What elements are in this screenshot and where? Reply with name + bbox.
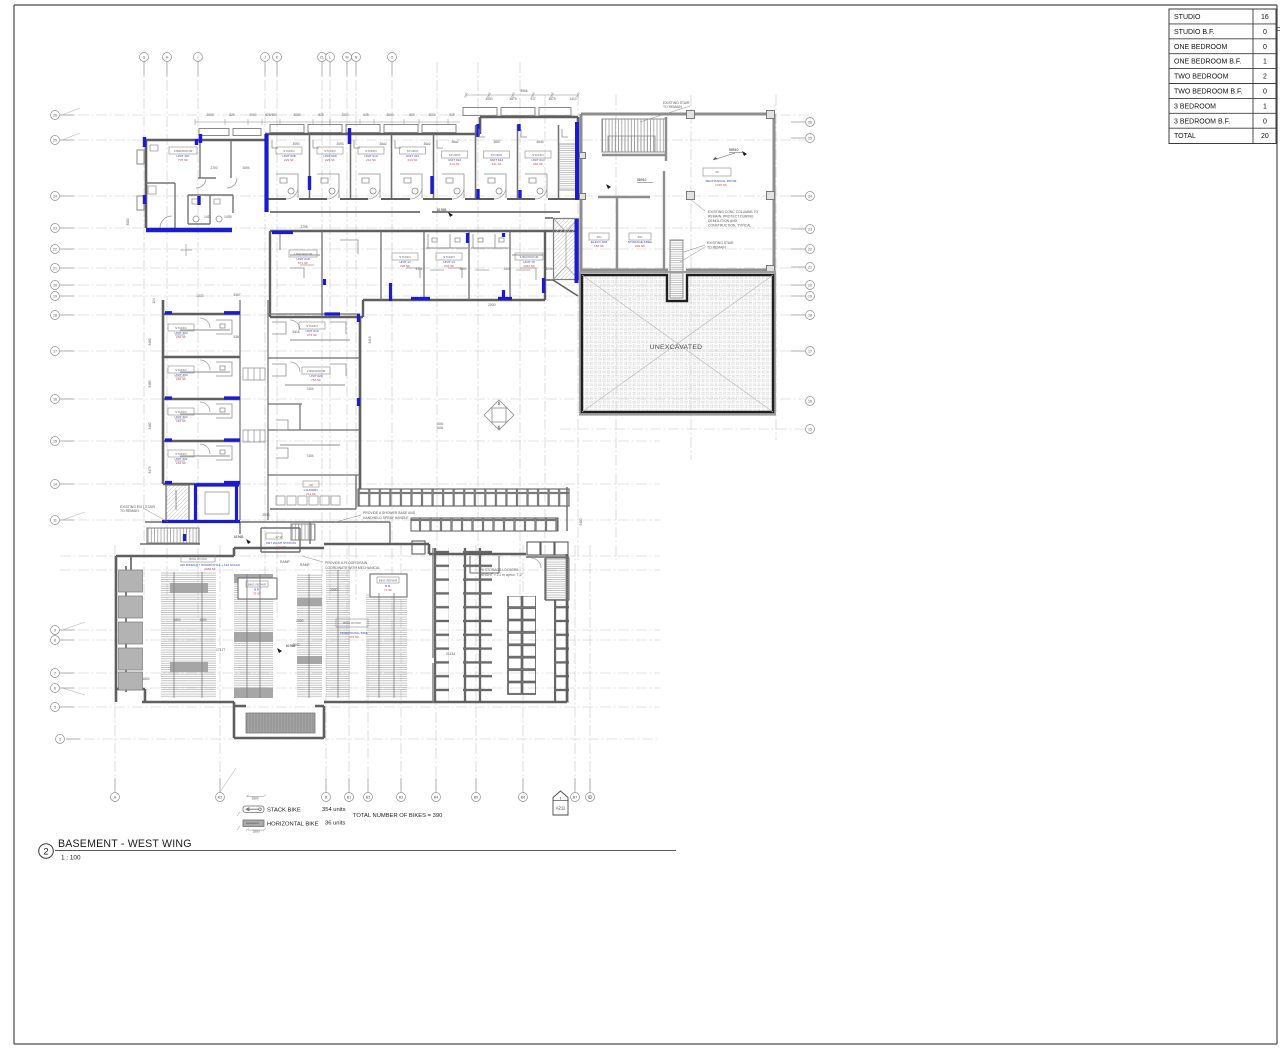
svg-text:23: 23 <box>808 227 812 231</box>
svg-text:B5: B5 <box>474 795 478 799</box>
svg-text:47 W: 47 W <box>275 535 282 539</box>
svg-text:1411: 1411 <box>204 215 211 219</box>
svg-text:4X6: 4X6 <box>437 426 443 430</box>
svg-text:240 SF: 240 SF <box>533 162 543 166</box>
svg-text:STUDIO: STUDIO <box>306 324 318 328</box>
svg-text:3480: 3480 <box>148 380 152 387</box>
svg-text:61965: 61965 <box>286 644 296 648</box>
svg-text:I: I <box>198 55 199 59</box>
svg-text:EXISTING CONC COLUMNS TO: EXISTING CONC COLUMNS TO <box>708 210 759 214</box>
svg-text:15: 15 <box>808 427 812 431</box>
svg-text:STUDIO: STUDIO <box>491 153 503 157</box>
svg-text:TO REMAIN: TO REMAIN <box>663 105 682 109</box>
svg-text:STUDIO: STUDIO <box>175 326 187 330</box>
svg-text:53b7: 53b7 <box>233 335 240 339</box>
svg-text:3405: 3405 <box>503 267 510 271</box>
svg-text:3000: 3000 <box>341 113 348 117</box>
svg-text:754 SF: 754 SF <box>311 378 321 382</box>
svg-text:1443 SF: 1443 SF <box>523 264 535 268</box>
svg-text:14: 14 <box>53 482 57 486</box>
svg-text:778 SF: 778 SF <box>178 158 188 162</box>
svg-text:1: 1 <box>1263 103 1267 110</box>
svg-text:2533: 2533 <box>196 294 203 298</box>
svg-text:B3: B3 <box>399 795 403 799</box>
svg-text:BASEMENT - WEST WING: BASEMENT - WEST WING <box>58 838 192 850</box>
svg-text:H: H <box>166 55 169 59</box>
svg-text:STUDIO: STUDIO <box>175 452 187 456</box>
svg-text:76 STORAGE LOCKERS: 76 STORAGE LOCKERS <box>480 568 519 572</box>
svg-text:CL: CL <box>320 55 325 59</box>
svg-text:B4: B4 <box>434 795 438 799</box>
svg-text:17177: 17177 <box>216 648 226 652</box>
svg-text:825: 825 <box>363 113 369 117</box>
svg-text:19: 19 <box>808 294 812 298</box>
svg-text:825: 825 <box>229 113 235 117</box>
svg-text:124: 124 <box>152 298 156 304</box>
svg-text:246 SF: 246 SF <box>176 377 186 381</box>
svg-text:BIKE REPAIR: BIKE REPAIR <box>379 579 398 583</box>
svg-text:COORDINATE WITH MECHANICAL: COORDINATE WITH MECHANICAL <box>325 566 380 570</box>
svg-text:STUDIO: STUDIO <box>399 255 411 259</box>
svg-text:3 BEDROOM: 3 BEDROOM <box>1174 103 1216 110</box>
svg-text:HORIZONTAL BIKE: HORIZONTAL BIKE <box>267 822 319 828</box>
svg-text:ONE BEDROOM: ONE BEDROOM <box>1174 44 1227 51</box>
svg-text:274 SF: 274 SF <box>307 333 317 337</box>
svg-text:5418: 5418 <box>292 330 299 334</box>
svg-text:3134: 3134 <box>415 267 422 271</box>
svg-text:571 SF: 571 SF <box>298 261 308 265</box>
svg-text:STUDIO: STUDIO <box>324 149 336 153</box>
svg-text:ONE BEDROOM B.F.: ONE BEDROOM B.F. <box>1174 59 1241 66</box>
svg-text:G: G <box>143 55 146 59</box>
svg-text:1439: 1439 <box>224 215 232 219</box>
svg-text:71 SF: 71 SF <box>384 588 392 592</box>
svg-text:A211: A211 <box>556 806 566 811</box>
svg-text:8: 8 <box>54 638 56 642</box>
svg-text:2000: 2000 <box>296 619 304 623</box>
svg-text:3000: 3000 <box>459 267 466 271</box>
svg-text:B7: B7 <box>573 795 577 799</box>
svg-text:TOTAL NUMBER OF BIKES = 390: TOTAL NUMBER OF BIKES = 390 <box>353 813 442 819</box>
svg-text:473 SF: 473 SF <box>349 635 359 639</box>
svg-text:2283 SF: 2283 SF <box>204 567 216 571</box>
svg-text:22: 22 <box>808 247 812 251</box>
svg-text:3093: 3093 <box>292 142 299 146</box>
svg-text:24: 24 <box>808 194 812 198</box>
svg-text:0: 0 <box>1263 118 1267 125</box>
svg-text:226 SF: 226 SF <box>400 264 410 268</box>
svg-text:PROVIDE A FLOOR DRAIN,: PROVIDE A FLOOR DRAIN, <box>325 561 368 565</box>
svg-text:UNEXCAVATED: UNEXCAVATED <box>650 344 703 351</box>
svg-text:3479: 3479 <box>148 466 152 473</box>
svg-text:L: L <box>329 55 331 59</box>
svg-text:TO REMAIN: TO REMAIN <box>120 509 139 513</box>
svg-text:20: 20 <box>1261 133 1269 140</box>
svg-text:1: 1 <box>498 402 500 406</box>
svg-text:214 SF: 214 SF <box>450 162 460 166</box>
svg-text:214 SF: 214 SF <box>366 158 376 162</box>
svg-text:3 BEDROOM: 3 BEDROOM <box>174 149 193 153</box>
svg-text:26: 26 <box>53 113 57 117</box>
svg-text:1800: 1800 <box>251 797 258 801</box>
svg-text:11: 11 <box>53 518 57 522</box>
svg-text:2: 2 <box>43 847 48 858</box>
svg-text:STUDIO: STUDIO <box>407 149 419 153</box>
svg-text:26: 26 <box>808 120 812 124</box>
svg-text:1: 1 <box>560 797 562 801</box>
svg-text:STUDIO: STUDIO <box>175 368 187 372</box>
svg-text:B6: B6 <box>521 795 525 799</box>
svg-text:4640: 4640 <box>536 140 543 144</box>
svg-text:20: 20 <box>808 283 812 287</box>
svg-text:2533: 2533 <box>262 513 269 517</box>
svg-text:229 SF: 229 SF <box>325 158 335 162</box>
svg-text:3679: 3679 <box>548 97 555 101</box>
svg-text:B2: B2 <box>366 795 370 799</box>
svg-text:7404: 7404 <box>306 454 313 458</box>
svg-text:17: 17 <box>53 349 57 353</box>
svg-text:61965: 61965 <box>234 535 244 539</box>
svg-text:STUDIO: STUDIO <box>175 410 187 414</box>
svg-text:2798: 2798 <box>300 225 307 229</box>
svg-text:REMAIN, PROTECT DURING: REMAIN, PROTECT DURING <box>708 215 754 219</box>
svg-text:5: 5 <box>54 705 56 709</box>
svg-text:354 units: 354 units <box>322 807 346 813</box>
svg-text:2 BEDROOM: 2 BEDROOM <box>307 369 326 373</box>
svg-text:7: 7 <box>54 671 56 675</box>
svg-text:19: 19 <box>53 294 57 298</box>
svg-text:1800: 1800 <box>173 618 180 622</box>
svg-text:23: 23 <box>53 226 57 230</box>
svg-text:18: 18 <box>808 313 812 317</box>
svg-text:2000: 2000 <box>249 113 256 117</box>
svg-text:1800: 1800 <box>199 618 206 622</box>
svg-text:53b7: 53b7 <box>233 293 240 297</box>
svg-text:246 SF: 246 SF <box>176 419 186 423</box>
svg-text:1: 1 <box>1263 59 1267 66</box>
svg-text:229 SF: 229 SF <box>284 158 294 162</box>
svg-text:825/980: 825/980 <box>265 113 277 117</box>
svg-text:246 SF: 246 SF <box>176 461 186 465</box>
svg-text:3480: 3480 <box>148 422 152 429</box>
svg-text:3093: 3093 <box>336 142 343 146</box>
svg-text:1 BEDROOM: 1 BEDROOM <box>294 252 313 256</box>
svg-text:16: 16 <box>1261 14 1269 21</box>
svg-text:3657: 3657 <box>493 140 500 144</box>
svg-text:O: O <box>391 55 394 59</box>
svg-text:3: 3 <box>59 737 61 741</box>
svg-text:211 SF: 211 SF <box>306 492 316 496</box>
svg-text:17: 17 <box>808 349 812 353</box>
svg-text:STACK BIKE: STACK BIKE <box>267 808 301 814</box>
svg-text:7404: 7404 <box>306 387 313 391</box>
svg-text:58910: 58910 <box>637 178 647 182</box>
svg-text:3000: 3000 <box>126 218 130 225</box>
svg-text:9: 9 <box>54 628 56 632</box>
svg-text:RAMP: RAMP <box>280 560 291 564</box>
svg-text:BIKE ROOM: BIKE ROOM <box>343 621 361 625</box>
svg-text:HANDHELD SPRAY HANDLE: HANDHELD SPRAY HANDLE <box>363 516 409 520</box>
svg-text:48: 48 <box>309 483 313 487</box>
svg-text:304b: 304b <box>545 267 552 271</box>
svg-text:N: N <box>355 55 358 59</box>
svg-text:246 SF: 246 SF <box>176 335 186 339</box>
svg-text:825: 825 <box>318 113 324 117</box>
svg-text:0: 0 <box>1263 89 1267 96</box>
svg-text:RAMP: RAMP <box>300 563 311 567</box>
svg-text:231 SF: 231 SF <box>492 162 502 166</box>
svg-text:21134: 21134 <box>446 652 455 656</box>
svg-text:A2: A2 <box>218 795 222 799</box>
svg-text:3 BEDROOM B.F.: 3 BEDROOM B.F. <box>1174 118 1230 125</box>
svg-text:C: C <box>589 795 592 799</box>
svg-text:25: 25 <box>53 138 57 142</box>
svg-text:STUDIO: STUDIO <box>443 255 455 259</box>
svg-text:BIKE ROOM: BIKE ROOM <box>189 557 207 561</box>
svg-text:3480: 3480 <box>148 338 152 345</box>
svg-text:STUDIO: STUDIO <box>532 153 544 157</box>
svg-text:J: J <box>264 55 266 59</box>
svg-text:2000: 2000 <box>330 588 338 592</box>
svg-text:89b6: 89b6 <box>520 89 527 93</box>
svg-text:DEMOLITION AND: DEMOLITION AND <box>708 219 738 223</box>
svg-text:58910: 58910 <box>729 148 739 152</box>
svg-text:3679: 3679 <box>509 97 516 101</box>
svg-text:1410: 1410 <box>569 97 576 101</box>
svg-text:16: 16 <box>53 397 57 401</box>
svg-text:3040: 3040 <box>485 97 492 101</box>
svg-text:EXISTING STAIR: EXISTING STAIR <box>707 241 734 245</box>
svg-text:18: 18 <box>53 313 57 317</box>
svg-text:61965: 61965 <box>437 208 447 212</box>
svg-text:184 SF: 184 SF <box>594 244 604 248</box>
svg-text:45c: 45c <box>597 235 602 239</box>
svg-text:36a2: 36a2 <box>451 140 458 144</box>
svg-text:21: 21 <box>808 265 812 269</box>
svg-text:2694: 2694 <box>242 166 249 170</box>
svg-text:1 : 100: 1 : 100 <box>61 855 81 862</box>
svg-text:STUDIO B.F.: STUDIO B.F. <box>1174 29 1215 36</box>
svg-text:2000: 2000 <box>488 303 496 307</box>
svg-text:HEIGHT = 2.2 m aprox. 7'-2": HEIGHT = 2.2 m aprox. 7'-2" <box>480 573 524 577</box>
svg-text:36 units: 36 units <box>325 821 345 827</box>
svg-text:3000: 3000 <box>386 113 393 117</box>
svg-text:232 SF: 232 SF <box>444 264 454 268</box>
svg-text:0: 0 <box>1263 44 1267 51</box>
svg-text:TWO BEDROOM: TWO BEDROOM <box>1174 74 1229 81</box>
svg-text:M: M <box>346 55 349 59</box>
svg-text:B1: B1 <box>347 795 351 799</box>
svg-text:TWO BEDROOM B.F.: TWO BEDROOM B.F. <box>1174 89 1243 96</box>
svg-text:3000: 3000 <box>428 113 435 117</box>
svg-text:36a2: 36a2 <box>379 142 386 146</box>
svg-text:20: 20 <box>53 283 57 287</box>
svg-text:917: 917 <box>530 97 536 101</box>
svg-text:3000: 3000 <box>293 113 300 117</box>
svg-text:TO REMAIN: TO REMAIN <box>707 246 726 250</box>
svg-text:825: 825 <box>409 113 415 117</box>
svg-text:16: 16 <box>808 399 812 403</box>
svg-text:1 BEDROOM: 1 BEDROOM <box>520 255 539 259</box>
svg-text:3413: 3413 <box>368 336 372 343</box>
svg-text:36a2: 36a2 <box>423 142 430 146</box>
svg-text:15: 15 <box>53 439 57 443</box>
svg-text:1: 1 <box>498 425 500 429</box>
svg-text:STUDIO: STUDIO <box>283 149 295 153</box>
svg-text:STUDIO: STUDIO <box>1174 14 1201 21</box>
svg-text:PROVIDE A SHOWER BASE AND: PROVIDE A SHOWER BASE AND <box>363 511 416 515</box>
svg-text:STUDIO: STUDIO <box>449 153 461 157</box>
svg-text:5400: 5400 <box>579 518 583 525</box>
svg-text:2700: 2700 <box>210 166 217 170</box>
svg-text:21: 21 <box>53 266 57 270</box>
svg-text:1800: 1800 <box>142 677 149 681</box>
svg-text:24: 24 <box>53 194 57 198</box>
svg-text:UNEXCAVATED: UNEXCAVATED <box>174 490 178 510</box>
svg-text:STUDIO: STUDIO <box>365 149 377 153</box>
svg-text:2: 2 <box>1263 74 1267 81</box>
svg-text:6: 6 <box>54 686 56 690</box>
svg-text:141 SF: 141 SF <box>276 545 286 549</box>
svg-text:1745 SF: 1745 SF <box>715 183 727 187</box>
svg-text:213 SF: 213 SF <box>408 158 418 162</box>
svg-text:46c: 46c <box>638 235 643 239</box>
svg-text:246 SF: 246 SF <box>635 244 645 248</box>
svg-text:TOTAL: TOTAL <box>1174 133 1196 140</box>
svg-text:2000: 2000 <box>206 113 213 117</box>
svg-text:BIKE REPAIR: BIKE REPAIR <box>248 583 267 587</box>
svg-text:22: 22 <box>53 247 57 251</box>
svg-text:0: 0 <box>1263 29 1267 36</box>
svg-text:49: 49 <box>715 170 719 174</box>
svg-text:825: 825 <box>449 113 455 117</box>
svg-text:CONSTRUCTION, TYPICAL: CONSTRUCTION, TYPICAL <box>708 224 751 228</box>
svg-text:25: 25 <box>808 136 812 140</box>
